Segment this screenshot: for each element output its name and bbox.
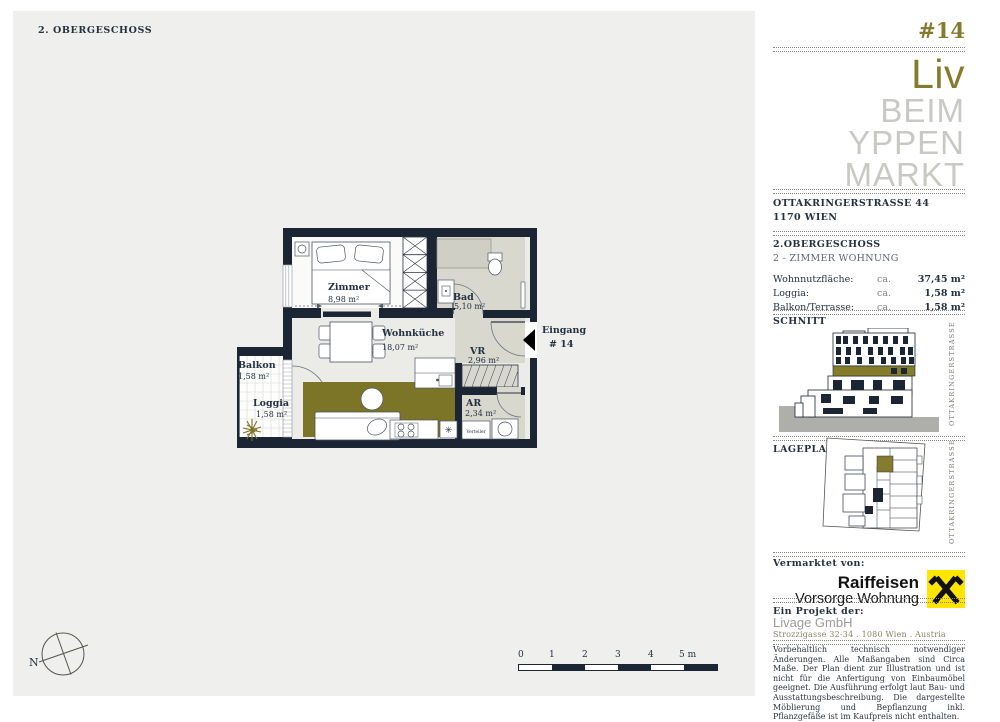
scale-tick: 5 m	[679, 650, 696, 660]
eingang-label: Eingang	[542, 325, 586, 336]
vr-area: 2,96 m²	[468, 356, 499, 365]
stove-icon	[390, 420, 438, 439]
row-value: 37,45 m²	[903, 273, 965, 287]
divider	[773, 189, 965, 194]
balkon-label: Balkon	[238, 360, 276, 371]
address-block: OTTAKRINGERSTRASSE 44 1170 WIEN	[773, 197, 929, 226]
sink	[438, 280, 454, 303]
scale-tick: 1	[549, 650, 555, 660]
logo-line-liv: Liv	[773, 54, 965, 95]
nightstand-lamp	[295, 242, 309, 256]
sofa	[315, 412, 400, 440]
unit-floor: 2.OBERGESCHOSS	[773, 239, 965, 250]
row-label: Loggia:	[773, 287, 877, 301]
vent-symbol-icon: ✳	[440, 421, 457, 438]
logo-line-beim: BEIM	[773, 95, 965, 127]
eingang-number: # 14	[549, 339, 574, 350]
street-label-vertical: OTTAKRINGERSTRASSE	[948, 436, 956, 544]
wardrobe-closet	[403, 237, 427, 308]
address-city: 1170 WIEN	[773, 211, 929, 225]
radiator	[521, 282, 525, 308]
row-ca: ca.	[877, 287, 903, 301]
scale-tick: 2	[582, 650, 588, 660]
wohnkueche-area: 18,07 m²	[382, 343, 418, 352]
loggia-label: Loggia	[253, 398, 289, 409]
zimmer-area: 8,98 m²	[328, 295, 359, 304]
area-table: Wohnnutzfläche: ca. 37,45 m² Loggia: ca.…	[773, 273, 965, 315]
schnitt-drawing	[773, 328, 947, 432]
kitchen-island	[415, 358, 455, 388]
shower	[437, 239, 491, 268]
balkon-area: 1,58 m²	[238, 372, 269, 381]
svg-text:Verteiler: Verteiler	[465, 430, 486, 435]
divider	[773, 231, 965, 236]
scale-bar: 0 1 2 3 4 5 m	[518, 650, 724, 676]
scale-tick: 0	[518, 650, 524, 660]
unit-info: 2.OBERGESCHOSS 2 - ZIMMER WOHNUNG Wohnnu…	[773, 239, 965, 315]
svg-text:✳: ✳	[445, 426, 453, 436]
wohnkueche-label: Wohnküche	[381, 328, 444, 339]
logo-line-yppen: YPPEN	[773, 127, 965, 159]
loggia-area: 1,58 m²	[256, 410, 287, 419]
row-value: 1,58 m²	[903, 287, 965, 301]
schnitt-figure: SCHNITT	[773, 316, 965, 434]
address-street: OTTAKRINGERSTRASSE 44	[773, 197, 929, 211]
ar-label: AR	[465, 398, 481, 409]
scale-tick: 4	[648, 650, 654, 660]
ar-area: 2,34 m²	[465, 409, 496, 418]
unit-number: #14	[918, 18, 965, 43]
project-company: Livage GmbH	[773, 615, 852, 630]
table-row: Wohnnutzfläche: ca. 37,45 m²	[773, 273, 965, 287]
raiffeisen-brand: Raiffeisen	[795, 574, 919, 591]
marketing-label: Vermarktet von:	[773, 558, 865, 569]
divider	[773, 598, 965, 603]
unit-type: 2 - ZIMMER WOHNUNG	[773, 253, 965, 264]
toilet	[488, 253, 502, 275]
vr-wardrobe	[462, 365, 518, 387]
coffee-table	[361, 388, 383, 410]
row-ca: ca.	[877, 273, 903, 287]
washing-machine	[492, 419, 518, 439]
compass-icon: N	[27, 623, 102, 685]
divider	[773, 310, 965, 315]
divider	[773, 552, 965, 557]
floorplan-drawing: ✳ Verteiler Zimmer 8,98 m² Wohnküche 18,…	[225, 220, 590, 460]
zimmer-label: Zimmer	[328, 282, 371, 293]
table-row: Loggia: ca. 1,58 m²	[773, 287, 965, 301]
scale-tick: 3	[615, 650, 621, 660]
verteiler-box: Verteiler	[462, 421, 490, 439]
highlighted-unit	[877, 456, 893, 472]
project-address: Strozzigasse 32-34 . 1080 Wien . Austria	[773, 630, 946, 639]
lageplan-figure: LAGEPLAN OTTAKRINGERSTRASSE	[773, 436, 965, 552]
scale-bar-segments	[518, 664, 718, 671]
bad-area: 5,10 m²	[454, 302, 485, 311]
project-logo: Liv BEIM YPPEN MARKT	[773, 54, 965, 191]
logo-line-markt: MARKT	[773, 159, 965, 191]
lageplan-drawing	[773, 436, 933, 548]
street-label-vertical: OTTAKRINGERSTRASSE	[948, 316, 956, 426]
zimmer-window	[283, 265, 292, 307]
sidebar: #14 Liv BEIM YPPEN MARKT OTTAKRINGERSTRA…	[773, 0, 965, 707]
disclaimer-text: Vorbehaltlich technisch notwendiger Ände…	[773, 645, 965, 722]
schnitt-title: SCHNITT	[773, 316, 965, 327]
row-label: Wohnnutzfläche:	[773, 273, 877, 287]
compass-north-label: N	[29, 656, 39, 669]
floor-label: 2. OBERGESCHOSS	[38, 25, 152, 36]
